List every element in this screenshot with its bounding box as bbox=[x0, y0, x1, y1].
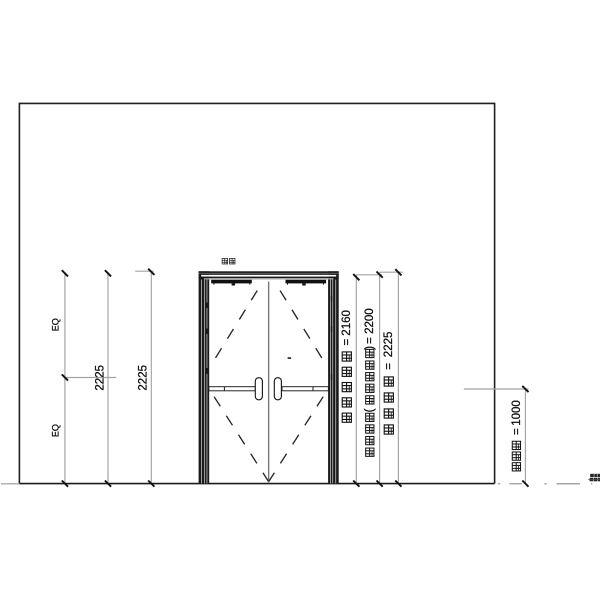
svg-text:EQ: EQ bbox=[51, 318, 61, 331]
svg-text:=: = bbox=[383, 363, 395, 370]
svg-text:2160: 2160 bbox=[341, 310, 353, 336]
svg-text:2225: 2225 bbox=[137, 365, 149, 391]
svg-text:2225: 2225 bbox=[383, 332, 395, 358]
svg-text:EQ: EQ bbox=[51, 424, 61, 437]
svg-text:=: = bbox=[341, 338, 353, 345]
svg-text:=: = bbox=[364, 337, 376, 344]
svg-text:1000: 1000 bbox=[511, 400, 523, 426]
svg-text:(: ( bbox=[364, 408, 376, 412]
svg-text:=: = bbox=[511, 428, 523, 435]
svg-text:2225: 2225 bbox=[95, 365, 107, 391]
svg-text:2200: 2200 bbox=[364, 308, 376, 334]
